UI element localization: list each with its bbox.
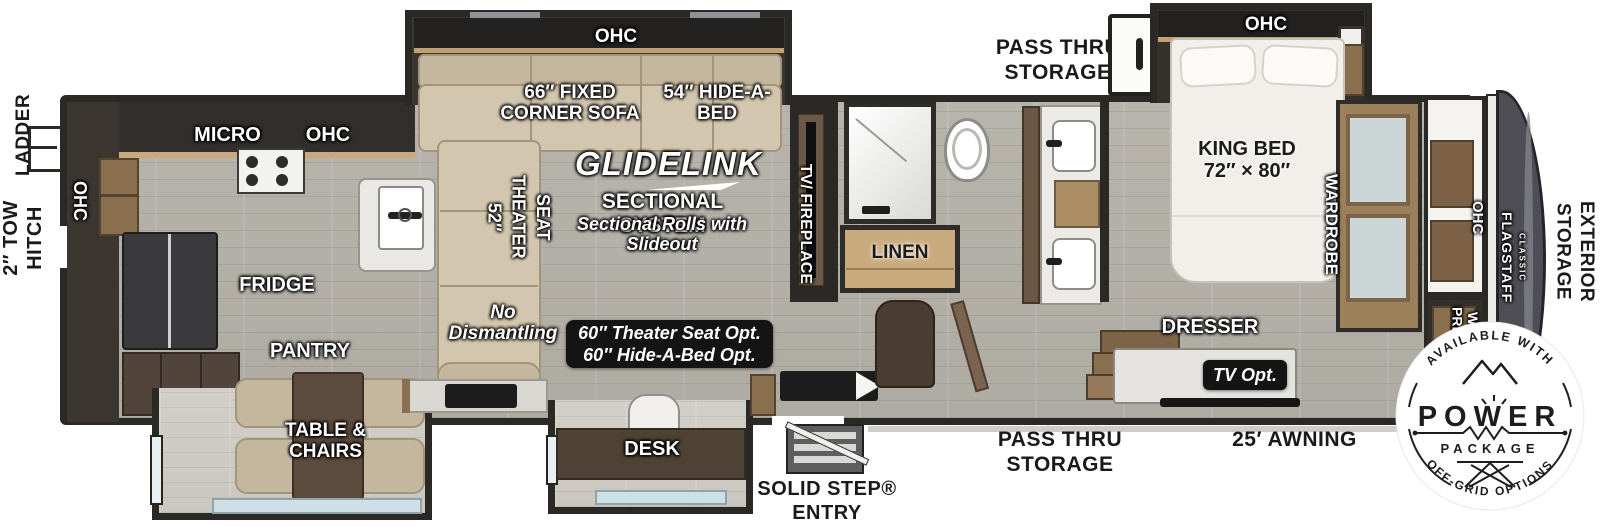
options-badge-line2: 60″ Hide-A-Bed Opt. [566, 344, 773, 367]
bedroom-ohc-label: OHC [1236, 14, 1296, 40]
sectional-ohc-label: OHC [586, 26, 646, 52]
table-chairs-label: TABLE & CHAIRS [258, 420, 393, 472]
flagstaff-brand: FLAGSTAFF CLASSIC [1498, 196, 1532, 320]
sectional-window-right [690, 12, 760, 18]
bath-tall-cabinet [1022, 106, 1040, 304]
kitchen-ohc-rear-label: OHC [70, 160, 100, 242]
vanity-faucet-1 [1046, 140, 1062, 147]
vanity-medicine-cabinet [1054, 180, 1100, 228]
tv-opt-badge-text: TV Opt. [1203, 365, 1287, 386]
stove [237, 148, 305, 194]
exterior-storage-label: EXTERIOR STORAGE [1546, 182, 1598, 322]
flagstaff-series: CLASSIC [1516, 196, 1526, 320]
sectional-window-left [470, 12, 540, 18]
theater-seat-label: 52″ THEATER SEAT [482, 162, 562, 272]
stove-burner-4 [276, 174, 288, 186]
options-badge-line1: 60″ Theater Seat Opt. [566, 322, 773, 345]
island-faucet-base [398, 208, 412, 222]
storage-door-handle [1136, 38, 1143, 70]
desk-label: DESK [616, 438, 688, 464]
wardrobe-label: WARDROBE [1322, 135, 1348, 315]
linen-shelf-line [846, 268, 954, 270]
fridge-label: FRIDGE [227, 274, 327, 300]
sectional-note-label: Sectional Rolls with Slideout [567, 214, 757, 258]
stove-burner-3 [246, 174, 258, 186]
dresser-tv [1160, 398, 1300, 407]
dinette-floor-mat [212, 498, 422, 514]
hide-a-bed-label: 54″ HIDE-A-BED [652, 82, 782, 130]
flagstaff-name: FLAGSTAFF [1498, 196, 1516, 320]
bed-fold-seam [1172, 215, 1343, 217]
options-badge: 60″ Theater Seat Opt. 60″ Hide-A-Bed Opt… [566, 320, 773, 368]
corner-sofa-label: 66″ FIXED CORNER SOFA [495, 82, 645, 130]
cooktop [445, 384, 517, 408]
bath-bedroom-wall [1100, 102, 1109, 302]
rear-ohc-shelf-line [101, 194, 137, 197]
pantry-label: PANTRY [255, 340, 365, 366]
tv-opt-badge: TV Opt. [1203, 360, 1287, 390]
desk-window [595, 490, 727, 505]
fridge-door-gap [168, 234, 171, 348]
kitchen-micro-label: MICRO [180, 124, 275, 150]
king-bed-label: KING BED 72″ × 80″ [1192, 138, 1302, 194]
sectional-system-label: SECTIONAL SYSTEM [570, 190, 755, 214]
chaise-seam-2 [440, 285, 538, 287]
wardrobe-mirror-top [1346, 114, 1410, 206]
kitchen-left-cabinets [67, 102, 119, 422]
floorplan-scene: LADDER 2″ TOW HITCH OHC MICRO OHC FRIDGE… [0, 0, 1600, 532]
entry-side-table [750, 374, 776, 416]
entry-step-3 [794, 456, 856, 463]
entry-label: SOLID STEP® ENTRY [752, 478, 902, 528]
zigzag-dot-right [1563, 431, 1568, 436]
zigzag-dot-left [1413, 431, 1418, 436]
ladder-label: LADDER [13, 96, 37, 176]
shower-fixture [862, 206, 890, 214]
storage-door-open [1108, 14, 1154, 96]
awning-label: 25′ AWNING [1222, 428, 1367, 454]
dresser-label: DRESSER [1150, 316, 1270, 342]
hall-cabinet [875, 300, 935, 388]
wardrobe-mirror-bottom [1346, 214, 1410, 302]
vanity-faucet-2 [1046, 258, 1062, 265]
badge-power-word: POWER [1418, 401, 1563, 433]
linen-label: LINEN [855, 242, 945, 266]
pass-thru-bottom-label: PASS THRU STORAGE [985, 428, 1135, 480]
glidelink-logo: GLIDELINK [575, 146, 750, 184]
tv-fireplace-label: TV/ FIREPLACE [796, 136, 826, 312]
tow-hitch-label: 2″ TOW HITCH [0, 193, 50, 283]
stove-burner-2 [276, 156, 288, 168]
rear-ohc-cabinet [99, 158, 139, 236]
bed-pillow-left [1179, 44, 1257, 88]
no-dismantling-label: No Dismantling [448, 302, 558, 352]
stove-burner-1 [246, 156, 258, 168]
bed-pillow-right [1261, 44, 1339, 88]
dinette-side-window [150, 435, 163, 505]
toilet-seat-ring [952, 128, 982, 170]
bottom-counter-wood-edge [402, 379, 410, 413]
desk-chair [628, 394, 680, 432]
badge-package-word: PACKAGE [1440, 441, 1539, 456]
power-package-badge: AVAILABLE WITH POWER PACKAGE OFF-GRID OP… [1395, 321, 1585, 511]
kitchen-ohc-top-label: OHC [296, 124, 360, 150]
